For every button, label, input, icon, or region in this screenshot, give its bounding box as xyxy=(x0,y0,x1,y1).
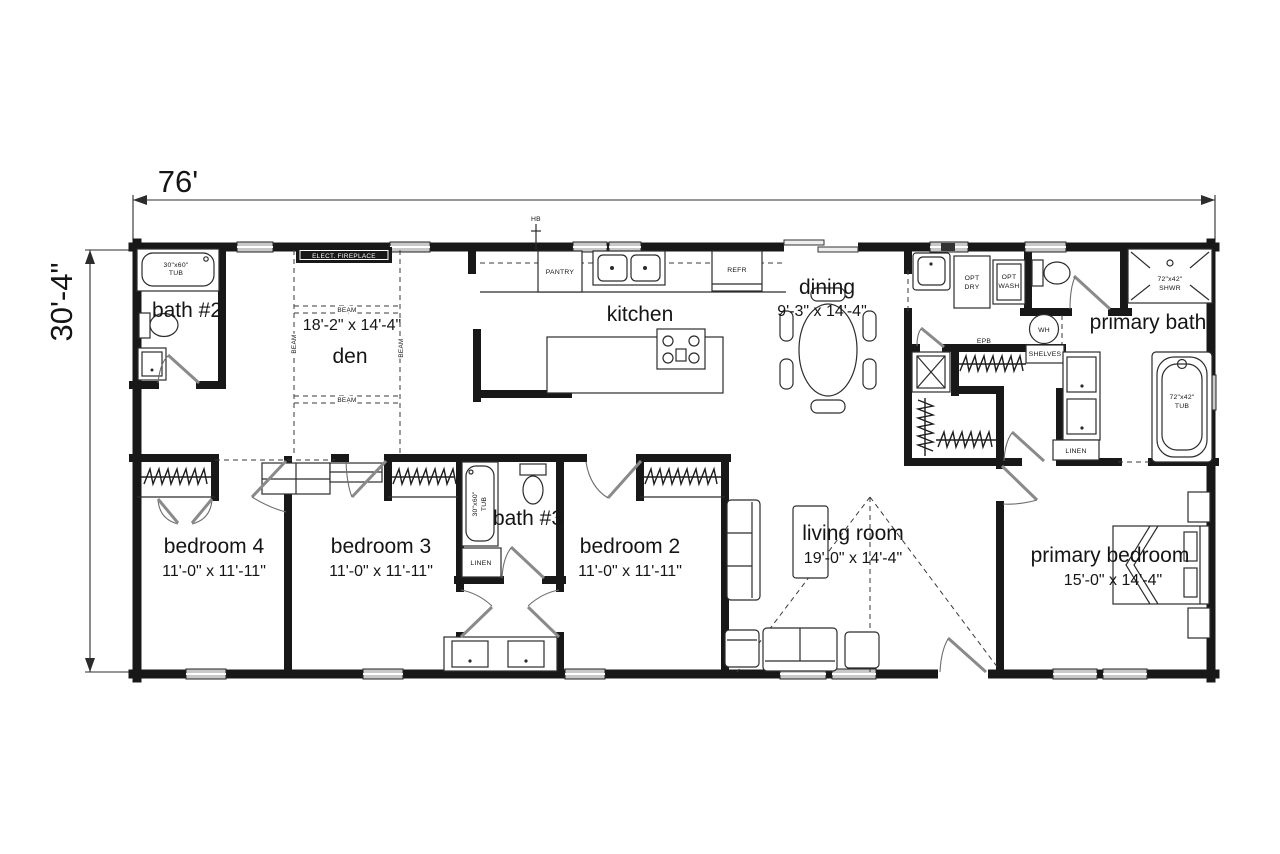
linen-closet-bath3: LINEN xyxy=(462,548,501,577)
linen-label-bath3: LINEN xyxy=(470,560,491,567)
primary-bath-label: primary bath xyxy=(1090,311,1207,334)
bathtub: 30"x60" TUB xyxy=(137,249,219,291)
bath2-label: bath #2 xyxy=(152,299,222,322)
sink xyxy=(138,348,166,380)
opt-washer-label-1: OPT xyxy=(1002,274,1017,281)
sofa xyxy=(727,500,760,600)
kitchen-island xyxy=(547,329,723,393)
primary-bedroom-label: primary bedroom xyxy=(1031,544,1190,567)
optional-dryer: OPT DRY xyxy=(954,256,990,308)
overall-height-label: 30'-4" xyxy=(44,263,79,342)
tub-size-label: 30"x60" xyxy=(163,262,188,269)
nightstand xyxy=(1188,492,1210,522)
den-label: den xyxy=(332,345,367,368)
side-chair xyxy=(845,632,879,668)
beam-label-top: BEAM xyxy=(337,307,356,314)
closet-rod-bedroom3 xyxy=(391,469,456,484)
beam-label-bottom: BEAM xyxy=(337,397,356,404)
armchair xyxy=(725,630,759,667)
vanity-door-bedroom3 xyxy=(461,590,492,637)
primary-tub: 72"x42" TUB xyxy=(1152,352,1212,462)
dining-label: dining xyxy=(799,276,855,299)
dimension-height: 30'-4" xyxy=(44,250,130,672)
primary-bedroom-door xyxy=(1002,466,1037,504)
living-label: living room xyxy=(802,522,904,545)
refrigerator: REFR xyxy=(712,251,762,291)
dim-arrow-down xyxy=(85,658,95,672)
bath3-tub-size-label: 30"x60" xyxy=(472,491,479,516)
window xyxy=(1053,669,1097,679)
dimension-width: 76' xyxy=(133,164,1215,240)
bedroom-strip xyxy=(141,460,721,524)
shower-size-label: 72"x42" xyxy=(1157,276,1182,283)
vanity-shared xyxy=(444,637,557,671)
beam-label-right: BEAM xyxy=(398,338,405,357)
opt-dryer-label-2: DRY xyxy=(965,284,980,291)
window xyxy=(832,669,876,679)
loveseat xyxy=(763,628,837,671)
window xyxy=(1025,242,1066,252)
shower: 72"x42" SHWR xyxy=(1128,249,1212,303)
hose-bib-label: HB xyxy=(531,216,541,223)
refrigerator-label: REFR xyxy=(727,267,747,274)
window xyxy=(1103,669,1147,679)
dining-size: 9'-3" x 14'-4" xyxy=(777,303,867,320)
window xyxy=(390,242,430,252)
bedroom4-size: 11'-0" x 11'-11" xyxy=(162,563,266,580)
bathtub-vertical: 30"x60" TUB xyxy=(462,462,498,546)
linen-label-primary: LINEN xyxy=(1065,448,1086,455)
primary-tub-size-label: 72"x42" xyxy=(1169,394,1194,401)
bath3-fixtures: 30"x60" TUB LINEN bat xyxy=(444,462,563,671)
primary-bath-fixtures: 72"x42" SHWR LINEN 72"x42" TUB primary b… xyxy=(1053,249,1212,462)
pantry-label: PANTRY xyxy=(546,269,575,276)
dim-arrow-left xyxy=(133,195,147,205)
beam-label-left: BEAM xyxy=(291,334,298,353)
closet-rod-hall-vertical xyxy=(918,398,933,456)
shelves-label: SHELVES xyxy=(1029,351,1062,358)
electric-fireplace: ELECT. FIREPLACE xyxy=(296,247,392,263)
bedroom3-label: bedroom 3 xyxy=(331,535,431,558)
primary-tub-label: TUB xyxy=(1175,403,1190,410)
electric-fireplace-label: ELECT. FIREPLACE xyxy=(312,253,376,260)
closet-rod-bedroom2 xyxy=(643,469,721,484)
bath3-door xyxy=(502,547,544,578)
kitchen-label: kitchen xyxy=(607,303,674,326)
shower-label: SHWR xyxy=(1159,285,1181,292)
floor-plan-drawing: 76' 30'-4" xyxy=(0,0,1280,854)
optional-washer: OPT WASH xyxy=(993,260,1025,304)
window xyxy=(363,669,403,679)
pantry: PANTRY xyxy=(538,251,582,292)
floor-plan-page: 76' 30'-4" xyxy=(0,0,1280,854)
shelves: SHELVES xyxy=(1026,345,1064,363)
closet-rod-hall-horizontal xyxy=(936,432,998,447)
overall-width-label: 76' xyxy=(158,164,198,199)
cooktop xyxy=(657,329,705,369)
bedroom2-size: 11'-0" x 11'-11" xyxy=(578,563,682,580)
den-size: 18'-2" x 14'-4" xyxy=(303,317,401,334)
primary-bedroom-fixtures: primary bedroom 15'-0" x 14'-4" xyxy=(1002,466,1210,638)
wc-door xyxy=(1070,276,1110,309)
bedroom3-size: 11'-0" x 11'-11" xyxy=(329,563,433,580)
window xyxy=(930,242,968,252)
closet-rod-bedroom4 xyxy=(141,469,211,484)
primary-vanity xyxy=(1063,352,1100,440)
water-heater-label: WH xyxy=(1038,327,1050,334)
window xyxy=(186,669,226,679)
bath3-label: bath #3 xyxy=(493,507,563,530)
opt-washer-label-2: WASH xyxy=(998,283,1019,290)
closet-rod-primary xyxy=(957,356,1026,371)
toilet xyxy=(520,464,546,504)
utility-door xyxy=(917,328,944,347)
window xyxy=(237,242,273,252)
opt-dryer-label-1: OPT xyxy=(965,275,980,282)
bedroom2-door xyxy=(586,461,641,498)
dim-arrow-up xyxy=(85,250,95,264)
bedroom4-closet-doors xyxy=(158,499,212,524)
bath3-tub-label: TUB xyxy=(481,497,488,512)
window xyxy=(565,669,605,679)
tub-label: TUB xyxy=(169,270,184,277)
sliding-door xyxy=(784,240,858,252)
primary-bedroom-size: 15'-0" x 14'-4" xyxy=(1064,572,1162,589)
living-size: 19'-0" x 14'-4" xyxy=(804,550,902,567)
linen-closet-primary: LINEN xyxy=(1053,440,1099,460)
vanity-door-bedroom2 xyxy=(528,590,559,637)
kitchen-sink xyxy=(593,251,665,285)
utility-sink xyxy=(913,253,950,290)
dining-fixtures: dining 9'-3" x 14'-4" xyxy=(777,270,908,413)
nightstand xyxy=(1188,608,1210,638)
bedroom4-label: bedroom 4 xyxy=(164,535,265,558)
electric-panel-label: EPB xyxy=(977,338,992,345)
kitchen-fixtures: PANTRY REFR kitchen xyxy=(480,251,786,393)
hall-closet-door xyxy=(1004,432,1044,461)
dim-arrow-right xyxy=(1201,195,1215,205)
toilet xyxy=(1032,260,1070,286)
water-heater: WH xyxy=(1030,315,1063,345)
bedroom2-label: bedroom 2 xyxy=(580,535,680,558)
furnace-closet xyxy=(912,352,950,392)
